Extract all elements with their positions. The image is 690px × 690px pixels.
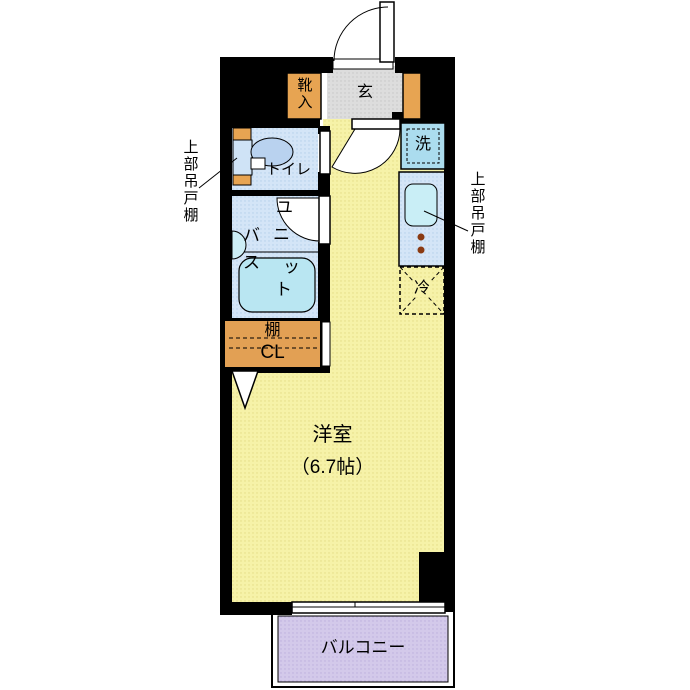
hall-door-leaf: [352, 119, 400, 129]
bath-door-leaf: [319, 196, 330, 244]
wall-toilet-bath-divider: [220, 190, 330, 196]
floor-plan-drawing: [0, 0, 690, 690]
wall-under-shoebox: [287, 119, 320, 128]
toilet-seat-box: [251, 158, 265, 169]
upper-cabinet-note-right: 上部吊戸棚: [468, 171, 485, 256]
entrance-label: 玄: [327, 84, 403, 102]
entrance-side-cabinet: [403, 73, 421, 119]
kitchen-sink: [405, 184, 437, 226]
room-size-label: （6.7帖）: [230, 458, 435, 479]
floor-plan: 玄 靴入 洗 トイレ ユ ニ ッ ト バ ス 冷 棚 CL 洋室 （6.7帖） …: [0, 0, 690, 690]
unit-bath-char-ni: ニ: [273, 226, 290, 245]
washer-label: 洗: [401, 136, 445, 154]
unit-bath-char-ttu: ッ: [283, 258, 300, 277]
balcony-label: バルコニー: [278, 639, 448, 658]
toilet-lower-cabinet: [233, 175, 251, 185]
unit-bath-char-ba: バ: [243, 227, 260, 246]
wall-top-left: [220, 57, 333, 73]
closet-label: CL: [224, 343, 321, 364]
unit-bath-char-su: ス: [243, 254, 260, 273]
unit-bath-char-yu: ユ: [276, 199, 293, 218]
wall-bottom-left: [220, 602, 292, 615]
toilet-upper-cabinet: [233, 128, 251, 140]
burner-dot-1: [418, 234, 425, 241]
wall-corner-block-left: [220, 73, 287, 128]
entrance-door-leaf: [380, 2, 394, 62]
burner-dot-2: [418, 247, 425, 254]
shoe-cabinet-label: 靴入: [295, 77, 312, 111]
closet-door-edge: [322, 322, 330, 366]
toilet-door-leaf: [320, 131, 330, 174]
upper-cabinet-note-left: 上部吊戸棚: [181, 139, 198, 224]
unit-bath-char-to: ト: [275, 281, 292, 300]
toilet-label: トイレ: [266, 162, 311, 179]
shelf-label: 棚: [224, 322, 321, 340]
room-label: 洋室: [230, 424, 435, 446]
fridge-label: 冷: [400, 280, 444, 298]
toilet-tank: [233, 140, 252, 175]
wall-bath-right: [318, 242, 330, 324]
